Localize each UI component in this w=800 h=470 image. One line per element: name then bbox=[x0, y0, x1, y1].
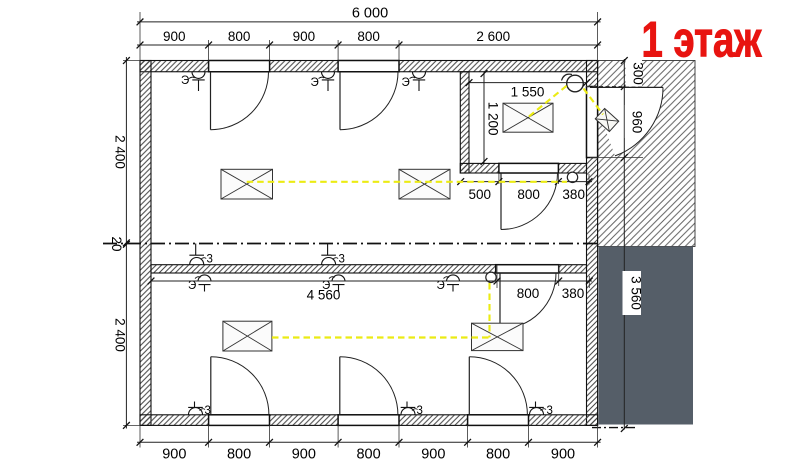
svg-text:900: 900 bbox=[162, 447, 186, 463]
svg-text:20: 20 bbox=[109, 236, 124, 251]
svg-text:1 550: 1 550 bbox=[511, 85, 545, 100]
svg-text:1 200: 1 200 bbox=[486, 102, 501, 136]
svg-text:4 560: 4 560 bbox=[307, 288, 341, 303]
svg-text:Э: Э bbox=[311, 77, 319, 89]
svg-text:900: 900 bbox=[163, 29, 186, 44]
svg-text:6 000: 6 000 bbox=[352, 6, 388, 22]
svg-text:800: 800 bbox=[228, 29, 251, 44]
svg-text:900: 900 bbox=[551, 447, 575, 463]
svg-text:960: 960 bbox=[630, 111, 645, 134]
svg-text:800: 800 bbox=[357, 29, 380, 44]
svg-text:900: 900 bbox=[292, 447, 316, 463]
svg-text:Э: Э bbox=[402, 77, 410, 89]
svg-text:Э: Э bbox=[437, 280, 445, 292]
svg-text:800: 800 bbox=[517, 286, 540, 301]
svg-text:3: 3 bbox=[339, 254, 345, 266]
svg-text:800: 800 bbox=[227, 447, 251, 463]
svg-text:2 600: 2 600 bbox=[476, 29, 510, 44]
svg-text:900: 900 bbox=[293, 29, 316, 44]
svg-text:2 400: 2 400 bbox=[113, 135, 128, 169]
svg-text:Э: Э bbox=[181, 75, 189, 87]
svg-text:900: 900 bbox=[421, 447, 445, 463]
svg-text:3: 3 bbox=[417, 405, 423, 417]
svg-text:2 400: 2 400 bbox=[113, 318, 128, 352]
svg-text:3: 3 bbox=[205, 405, 211, 417]
svg-text:3 560: 3 560 bbox=[629, 276, 644, 310]
svg-text:500: 500 bbox=[469, 187, 492, 202]
svg-text:Э: Э bbox=[188, 280, 196, 292]
svg-text:800: 800 bbox=[356, 447, 380, 463]
svg-text:380: 380 bbox=[562, 286, 585, 301]
svg-text:800: 800 bbox=[517, 187, 540, 202]
svg-text:3: 3 bbox=[547, 405, 553, 417]
svg-text:1 этаж: 1 этаж bbox=[642, 12, 762, 68]
svg-text:3: 3 bbox=[207, 254, 213, 266]
svg-text:380: 380 bbox=[562, 187, 585, 202]
svg-text:800: 800 bbox=[486, 447, 510, 463]
